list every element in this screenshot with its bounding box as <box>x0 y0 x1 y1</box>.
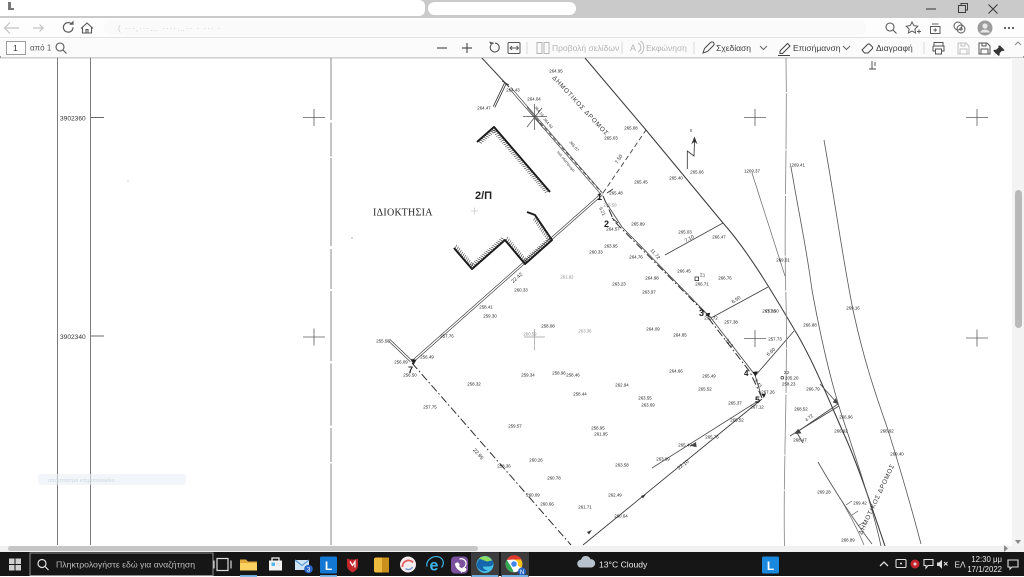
svg-text:3902340: 3902340 <box>60 334 86 341</box>
svg-text:260.64: 260.64 <box>614 514 628 519</box>
svg-text:2/Π: 2/Π <box>475 190 492 202</box>
svg-text:263.95: 263.95 <box>604 244 618 249</box>
svg-text:269.16: 269.16 <box>846 306 860 311</box>
svg-text:265.40: 265.40 <box>669 176 683 181</box>
svg-text:ΙΔΙΟΚΤΗΣΙΑ: ΙΔΙΟΚΤΗΣΙΑ <box>373 208 433 219</box>
svg-text:263.69: 263.69 <box>641 403 655 408</box>
svg-text:263.97: 263.97 <box>642 290 656 295</box>
svg-text:258.23: 258.23 <box>782 382 796 387</box>
svg-text:263.58: 263.58 <box>615 463 629 468</box>
svg-text:265.72: 265.72 <box>704 316 718 321</box>
svg-text:266.45: 266.45 <box>677 269 691 274</box>
svg-text:266.76: 266.76 <box>718 276 732 281</box>
svg-text:262.94: 262.94 <box>615 383 629 388</box>
svg-text:257.76: 257.76 <box>440 334 454 339</box>
svg-text:e: e <box>430 557 439 574</box>
svg-text:265.49: 265.49 <box>678 443 692 448</box>
svg-text:N: N <box>520 570 524 576</box>
svg-text:L: L <box>325 559 332 573</box>
svg-text:3: 3 <box>699 308 704 318</box>
svg-text:256.50: 256.50 <box>403 373 417 378</box>
svg-text:260.26: 260.26 <box>529 458 543 463</box>
svg-text:264.66: 264.66 <box>669 369 683 374</box>
svg-text:258.36: 258.36 <box>497 464 511 469</box>
svg-text:Εκφώνηση: Εκφώνηση <box>646 43 687 53</box>
svg-text:265.52: 265.52 <box>698 387 712 392</box>
svg-text:263.23: 263.23 <box>612 282 626 287</box>
svg-text:264.47: 264.47 <box>477 106 491 111</box>
svg-text:Προβολή σελίδων: Προβολή σελίδων <box>552 43 619 53</box>
svg-text:Σ1: Σ1 <box>700 273 706 278</box>
svg-text:267.26: 267.26 <box>761 390 775 395</box>
svg-text:265.52: 265.52 <box>730 418 744 423</box>
svg-text:A: A <box>630 43 636 53</box>
svg-text:258.95: 258.95 <box>591 426 605 431</box>
svg-text:258.32: 258.32 <box>467 382 481 387</box>
svg-text:13°C Cloudy: 13°C Cloudy <box>599 559 648 569</box>
svg-text:266.92: 266.92 <box>834 429 848 434</box>
svg-text:264.85: 264.85 <box>673 333 687 338</box>
svg-text:260.78: 260.78 <box>547 476 561 481</box>
svg-text:17/1/2022: 17/1/2022 <box>967 565 1002 574</box>
svg-text:260.66: 260.66 <box>540 502 554 507</box>
svg-text:264.98: 264.98 <box>645 276 659 281</box>
svg-text:Σ2: Σ2 <box>784 370 790 375</box>
svg-text:268.47: 268.47 <box>793 438 807 443</box>
svg-text:1269.41: 1269.41 <box>789 163 805 168</box>
svg-text:263.55: 263.55 <box>638 396 652 401</box>
svg-text:269.40: 269.40 <box>890 452 904 457</box>
svg-text:256.49: 256.49 <box>420 355 434 360</box>
svg-text:Πληκτρολογήστε εδώ για αναζήτη: Πληκτρολογήστε εδώ για αναζήτηση <box>56 559 195 569</box>
svg-text:260.33: 260.33 <box>514 288 528 293</box>
svg-text:265.48: 265.48 <box>609 191 623 196</box>
svg-text:απόσπασμα κτηματολογίου: απόσπασμα κτηματολογίου <box>48 477 115 484</box>
svg-text:266.79: 266.79 <box>806 387 820 392</box>
svg-text:258.46: 258.46 <box>566 373 580 378</box>
svg-text:257.73: 257.73 <box>768 337 782 342</box>
svg-text:269.42: 269.42 <box>853 501 867 506</box>
svg-text:258.44: 258.44 <box>573 392 587 397</box>
svg-text:265.89: 265.89 <box>631 222 645 227</box>
svg-text:255.58: 255.58 <box>376 339 390 344</box>
svg-text:( ···,···… ····…·· · ··· ·: ( ···,···… ····…·· · ··· · <box>118 24 221 33</box>
svg-text:256.09: 256.09 <box>394 360 408 365</box>
svg-text:266.96: 266.96 <box>839 415 853 420</box>
svg-text:269.28: 269.28 <box>817 490 831 495</box>
svg-text:264.57: 264.57 <box>606 227 620 232</box>
svg-text:264.09: 264.09 <box>646 327 660 332</box>
svg-text:260.09: 260.09 <box>526 493 540 498</box>
svg-text:268.52: 268.52 <box>794 407 808 412</box>
svg-text:259.34: 259.34 <box>521 373 535 378</box>
svg-text:267.36: 267.36 <box>762 309 776 314</box>
svg-text:258.08: 258.08 <box>541 324 555 329</box>
svg-text:265.03: 265.03 <box>678 230 692 235</box>
svg-text:265.37: 265.37 <box>728 401 742 406</box>
svg-text:264.43: 264.43 <box>506 88 520 93</box>
svg-text:1: 1 <box>597 192 602 202</box>
svg-text:259.57: 259.57 <box>508 424 522 429</box>
svg-text:Διαγραφή: Διαγραφή <box>876 43 913 53</box>
svg-text:258.41: 258.41 <box>479 305 493 310</box>
svg-text:3: 3 <box>307 566 311 573</box>
svg-text:264.04: 264.04 <box>527 97 541 102</box>
svg-text:266.71: 266.71 <box>695 282 709 287</box>
svg-text:266.47: 266.47 <box>712 235 726 240</box>
svg-text:L: L <box>767 559 774 573</box>
svg-text:269.01: 269.01 <box>776 258 790 263</box>
svg-text:266.88: 266.88 <box>803 323 817 328</box>
svg-text:Σχεδίαση: Σχεδίαση <box>716 43 751 53</box>
svg-text:205.20: 205.20 <box>785 376 799 381</box>
svg-text:267.12: 267.12 <box>750 405 764 410</box>
svg-text:265.49: 265.49 <box>702 374 716 379</box>
svg-text:268.89: 268.89 <box>841 538 855 543</box>
svg-text:265.03: 265.03 <box>604 136 618 141</box>
svg-text:1: 1 <box>13 43 18 53</box>
svg-text:259.30: 259.30 <box>483 314 497 319</box>
svg-text:257.75: 257.75 <box>423 405 437 410</box>
svg-text:265.50: 265.50 <box>603 203 617 208</box>
svg-text:5: 5 <box>755 395 760 405</box>
svg-text:ΕΛ: ΕΛ <box>955 559 967 569</box>
svg-text:264.95: 264.95 <box>549 69 563 74</box>
svg-text:265.66: 265.66 <box>690 170 704 175</box>
svg-text:261.82: 261.82 <box>560 275 574 280</box>
svg-text:260.59: 260.59 <box>523 332 537 337</box>
svg-text:265.08: 265.08 <box>624 126 638 131</box>
svg-text:268.92: 268.92 <box>880 429 894 434</box>
svg-text:261.71: 261.71 <box>578 505 592 510</box>
svg-text:258.96: 258.96 <box>552 371 566 376</box>
svg-text:262.49: 262.49 <box>608 493 622 498</box>
svg-text:Επισήμανση: Επισήμανση <box>793 43 841 53</box>
svg-text:3902360: 3902360 <box>60 116 86 123</box>
svg-text:265.45: 265.45 <box>634 180 648 185</box>
svg-text:263.36: 263.36 <box>578 329 592 334</box>
svg-text:263.89: 263.89 <box>656 457 670 462</box>
svg-text:260.33: 260.33 <box>589 250 603 255</box>
svg-text:261.95: 261.95 <box>594 432 608 437</box>
svg-text:1269.37: 1269.37 <box>744 169 760 174</box>
svg-text:4: 4 <box>744 369 749 378</box>
svg-text:12:30 μμ: 12:30 μμ <box>971 555 1002 564</box>
svg-text:264.76: 264.76 <box>629 255 643 260</box>
svg-text:από 1: από 1 <box>30 44 52 53</box>
svg-text:265.76: 265.76 <box>705 435 719 440</box>
svg-text:257.38: 257.38 <box>724 320 738 325</box>
